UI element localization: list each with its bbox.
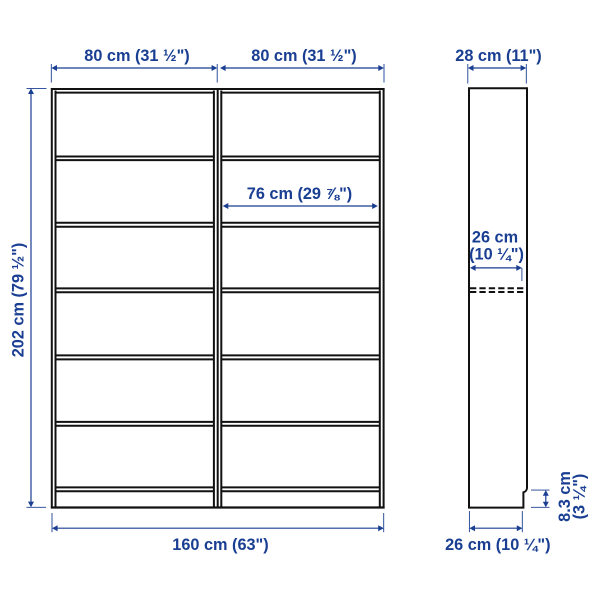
svg-text:26 cm: 26 cm [472,229,518,247]
svg-text:26 cm (10 ¼"): 26 cm (10 ¼") [445,536,550,554]
svg-text:80 cm (31 ½"): 80 cm (31 ½") [251,47,356,65]
svg-text:80 cm (31 ½"): 80 cm (31 ½") [84,47,189,65]
svg-text:(10 ¼"): (10 ¼") [469,246,524,264]
svg-text:202 cm (79 ½"): 202 cm (79 ½") [10,243,28,358]
svg-text:28 cm (11"): 28 cm (11") [455,47,541,65]
svg-text:76 cm (29 ⅞"): 76 cm (29 ⅞") [247,185,352,203]
svg-text:(3 ¼"): (3 ¼") [570,474,588,520]
svg-text:160 cm (63"): 160 cm (63") [172,536,268,554]
